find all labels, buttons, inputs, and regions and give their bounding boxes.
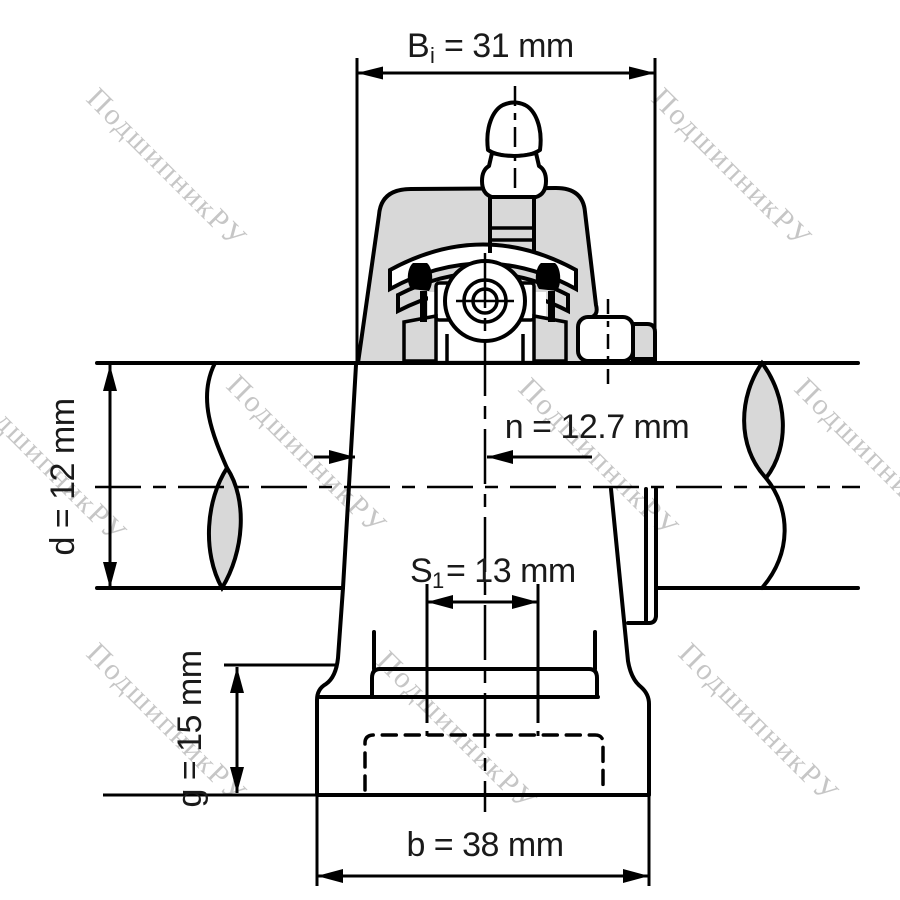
dimension-Bi-label: B i = 31 mm	[407, 27, 574, 68]
dim-Bi-subscript: i	[430, 43, 435, 68]
dim-S1-subscript: 1	[432, 568, 444, 593]
dim-n-label: n = 12.7 mm	[505, 408, 689, 446]
watermark-text: ПодшипникРУ	[672, 637, 845, 810]
seal-lip-left	[420, 291, 427, 322]
arrowhead-right-icon	[512, 595, 538, 609]
watermark-text: ПодшипникРУ	[80, 82, 253, 255]
arrowhead-up-icon	[103, 365, 117, 391]
dimension-n	[314, 450, 592, 464]
watermark-text: ПодшипникРУ	[645, 82, 818, 255]
shaft-break-curve-right	[762, 478, 785, 588]
bearing-housing	[358, 188, 597, 363]
set-screw-body	[578, 317, 633, 361]
dimension-d	[103, 365, 117, 588]
dim-Bi-symbol: B	[407, 27, 429, 65]
shaft-break-curve-left	[207, 363, 227, 468]
seal-lip-right	[548, 291, 555, 322]
arrowhead-left-icon	[357, 67, 383, 80]
dimension-S1-label: S 1 = 13 mm	[410, 552, 576, 593]
arrowhead-right-icon	[629, 67, 655, 80]
housing-bore-wedge-right	[534, 316, 566, 361]
side-flange-bottom	[628, 615, 656, 623]
seal-right	[536, 263, 560, 291]
arrowhead-up-icon	[230, 667, 244, 693]
arrowhead-right-icon	[623, 869, 649, 883]
technical-drawing-canvas: ПодшипникРУ ПодшипникРУ ПодшипникРУ Подш…	[0, 0, 900, 900]
housing-bore-wedge-left	[404, 316, 436, 361]
watermark-text: ПодшипникРУ	[220, 369, 393, 542]
dim-g-label: g = 15 mm	[171, 650, 209, 807]
watermark-text: ПодшипникРУ	[80, 637, 253, 810]
dim-S1-symbol: S	[410, 552, 432, 590]
set-screw-collar-right	[633, 324, 655, 359]
arrowhead-left-icon	[487, 450, 513, 464]
shaft-break-lens-right	[744, 363, 783, 478]
dim-S1-value: = 13 mm	[446, 552, 576, 590]
arrowhead-down-icon	[103, 562, 117, 588]
seal-left	[408, 263, 432, 291]
dim-d-label: d = 12 mm	[44, 398, 82, 555]
dim-b-label: b = 38 mm	[406, 826, 563, 864]
arrowhead-left-icon	[317, 869, 343, 883]
dim-Bi-value: = 31 mm	[444, 27, 574, 65]
watermark-text: ПодшипникРУ	[788, 372, 900, 545]
drawing-page: ПодшипникРУ ПодшипникРУ ПодшипникРУ Подш…	[0, 0, 900, 900]
arrowhead-left-icon	[427, 595, 453, 609]
